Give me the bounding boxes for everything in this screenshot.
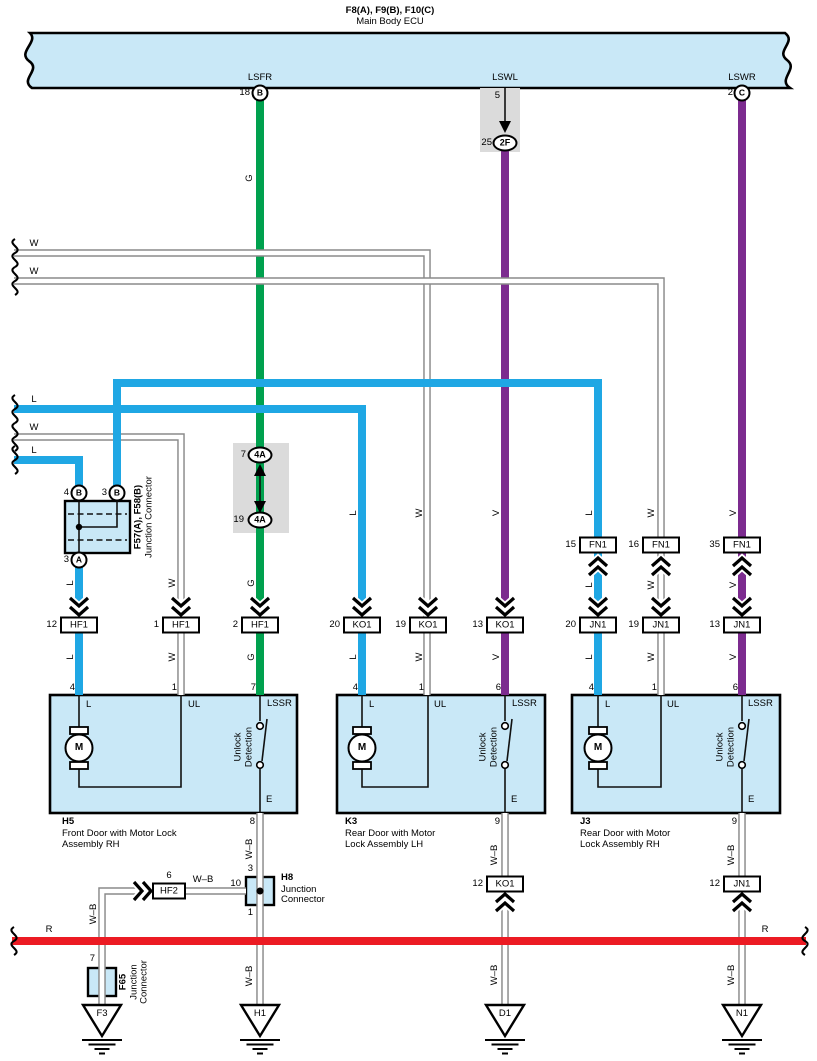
ko1-pin-19: 19 [395, 620, 406, 630]
f57-label: F57(A), F58(B) Junction Connector [134, 476, 155, 558]
j3-pin-lssr-number: 6 [733, 683, 738, 693]
j3-terminal-ul: UL [667, 700, 679, 710]
wire-label-w: W [30, 239, 39, 249]
wire-label-l: L [66, 580, 76, 585]
h5-terminal-e: E [266, 795, 272, 805]
wire-label-wb: W–B [245, 966, 255, 987]
h8-pin-left: 10 [230, 879, 241, 889]
wire-label-w: W [647, 653, 657, 662]
jn1-pin-20: 20 [565, 620, 576, 630]
k3-terminal-lssr: LSSR [512, 699, 537, 709]
ko1-connector: KO1 [409, 617, 447, 634]
j3-pin-ul-number: 1 [652, 683, 657, 693]
chevrons-up-bottom [496, 894, 751, 911]
ecu-pin-label-lswl: LSWL [492, 73, 518, 83]
fn1-connector: FN1 [642, 537, 680, 554]
main-body-ecu-band [25, 33, 790, 88]
h5-pin-ul-number: 1 [172, 683, 177, 693]
hf1-connector: HF1 [60, 617, 98, 634]
f57-type: Junction Connector [144, 476, 155, 558]
ecu-pin-number-2: 2 [728, 88, 733, 98]
f57-pin3-number: 3 [102, 488, 107, 498]
k3-switch-line2: Detection [489, 727, 500, 767]
h8-junction-dot [257, 888, 264, 895]
h5-desc2: Assembly RH [62, 840, 120, 850]
h8-type2: Connector [281, 895, 325, 905]
chevrons-down [70, 598, 751, 615]
chevrons-up-fn1 [589, 558, 751, 575]
h5-terminal-l: L [86, 700, 91, 710]
ecu-pin-label-lsfr: LSFR [248, 73, 272, 83]
wire-label-l: L [349, 654, 359, 659]
wire-label-l: L [585, 654, 595, 659]
wire-label-wb: W–B [193, 875, 214, 885]
j3-terminal-e: E [748, 795, 754, 805]
c2f-connector: 2F [493, 135, 518, 152]
jn1-pin-19: 19 [628, 620, 639, 630]
j3-switch-line1: Unlock [716, 727, 727, 767]
wire-label-l: L [31, 395, 36, 405]
fn1-pin-16: 16 [628, 540, 639, 550]
wire-label-w: W [647, 509, 657, 518]
wire-label-v: V [492, 510, 502, 516]
wire-label-l: L [349, 510, 359, 515]
ecu-pin-number-5: 5 [495, 91, 500, 101]
f65-type2: Connector [139, 960, 150, 1004]
fn1-pin-15: 15 [565, 540, 576, 550]
hf1-connector: HF1 [241, 617, 279, 634]
wire-label-l: L [31, 446, 36, 456]
f65-id: F65 [118, 960, 129, 1004]
wire-white-w3 [14, 437, 181, 695]
j3-id: J3 [580, 817, 591, 827]
ko1-pin-13: 13 [472, 620, 483, 630]
k3-switch-line1: Unlock [479, 727, 490, 767]
j3-desc2: Lock Assembly RH [580, 840, 660, 850]
hf1-pin-1: 1 [154, 620, 159, 630]
wire-label-g: G [247, 653, 257, 660]
f57-conn-b2: B [109, 485, 126, 502]
h8-pin-bottom: 1 [248, 908, 253, 918]
c4a-top-pin-number: 7 [241, 450, 246, 460]
h5-id: H5 [62, 817, 74, 827]
ground-label-f3: F3 [96, 1009, 107, 1019]
jn1-pin-13: 13 [709, 620, 720, 630]
wire-label-w: W [168, 579, 178, 588]
wiring-diagram: F8(A), F9(B), F10(C) Main Body ECU LSFR … [0, 0, 817, 1061]
h5-desc1: Front Door with Motor Lock [62, 829, 177, 839]
c4a-top-connector: 4A [248, 447, 273, 464]
wire-label-wb: W–B [727, 845, 737, 866]
wire-label-g: G [245, 174, 255, 181]
k3-terminal-l: L [369, 700, 374, 710]
ecu-connector-c: C [734, 85, 751, 102]
ecu-pin-label-lswr: LSWR [728, 73, 755, 83]
f57-pin4-number: 4 [64, 488, 69, 498]
k3-motor-label: M [358, 743, 366, 753]
wire-label-w: W [415, 509, 425, 518]
h5-terminal-ul: UL [188, 700, 200, 710]
ecu-pin-number-18: 18 [239, 88, 250, 98]
jn1-connector: JN1 [723, 617, 761, 634]
j3-pin-l-number: 4 [589, 683, 594, 693]
wire-label-wb: W–B [89, 904, 99, 925]
j3-motor-label: M [594, 743, 602, 753]
hf2-connector: HF2 [152, 883, 186, 900]
wire-label-wb: W–B [490, 965, 500, 986]
wire-label-w: W [30, 423, 39, 433]
k3-terminal-e: E [511, 795, 517, 805]
j3-desc1: Rear Door with Motor [580, 829, 670, 839]
diagram-graphics [0, 0, 817, 1061]
fn1-connector: FN1 [579, 537, 617, 554]
h5-switch-line2: Detection [244, 727, 255, 767]
ground-label-n1: N1 [736, 1009, 748, 1019]
jn1-connector: JN1 [723, 876, 761, 893]
wire-label-v: V [492, 654, 502, 660]
ko1-pin-20: 20 [329, 620, 340, 630]
wire-label-r: R [46, 925, 53, 935]
k3-switch-label: Unlock Detection [479, 727, 500, 767]
h8-id: H8 [281, 873, 293, 883]
ko1-bottom-pin-12: 12 [472, 879, 483, 889]
k3-desc1: Rear Door with Motor [345, 829, 435, 839]
wire-label-wb: W–B [245, 839, 255, 860]
h5-switch-line1: Unlock [234, 727, 245, 767]
c2f-pin-number: 25 [481, 138, 492, 148]
ko1-connector: KO1 [486, 876, 524, 893]
f57-conn-a: A [71, 552, 88, 569]
diagram-title-name: Main Body ECU [356, 17, 424, 27]
ground-label-h1: H1 [254, 1009, 266, 1019]
wire-label-r: R [762, 925, 769, 935]
wire-label-w: W [415, 653, 425, 662]
h5-pin-l-number: 4 [70, 683, 75, 693]
j3-pin-e-number: 9 [732, 817, 737, 827]
fn1-pin-35: 35 [709, 540, 720, 550]
f57-conn-b1: B [71, 485, 88, 502]
wire-label-l: L [585, 582, 595, 587]
f65-label: F65 Junction Connector [118, 960, 150, 1004]
c4a-bottom-connector: 4A [248, 512, 273, 529]
h5-motor-label: M [75, 743, 83, 753]
wire-label-w: W [647, 581, 657, 590]
diagram-title-models: F8(A), F9(B), F10(C) [346, 6, 435, 16]
k3-desc2: Lock Assembly LH [345, 840, 423, 850]
k3-pin-l-number: 4 [353, 683, 358, 693]
wire-label-w: W [168, 653, 178, 662]
h5-pin-e-number: 8 [250, 817, 255, 827]
j3-terminal-l: L [605, 700, 610, 710]
f57-name: F57(A), F58(B) [134, 476, 145, 558]
fn1-connector: FN1 [723, 537, 761, 554]
jn1-connector: JN1 [579, 617, 617, 634]
j3-terminal-lssr: LSSR [748, 699, 773, 709]
k3-id: K3 [345, 817, 357, 827]
ground-label-d1: D1 [499, 1009, 511, 1019]
j3-switch-line2: Detection [726, 727, 737, 767]
wire-label-l: L [585, 510, 595, 515]
hf1-pin-2: 2 [233, 620, 238, 630]
h8-pin-top: 3 [248, 864, 253, 874]
k3-pin-lssr-number: 6 [496, 683, 501, 693]
f65-pin-7: 7 [90, 954, 95, 964]
wire-label-l: L [66, 654, 76, 659]
k3-pin-ul-number: 1 [419, 683, 424, 693]
ko1-connector: KO1 [486, 617, 524, 634]
ecu-connector-b: B [252, 85, 269, 102]
jn1-connector: JN1 [642, 617, 680, 634]
k3-terminal-ul: UL [434, 700, 446, 710]
wire-label-v: V [729, 510, 739, 516]
k3-pin-e-number: 9 [495, 817, 500, 827]
wire-label-w: W [30, 267, 39, 277]
jn1-bottom-pin-12: 12 [709, 879, 720, 889]
wire-label-g: G [247, 579, 257, 586]
hf2-pin-6: 6 [166, 871, 171, 881]
ko1-connector: KO1 [343, 617, 381, 634]
wire-label-v: V [729, 654, 739, 660]
c4a-bottom-pin-number: 19 [233, 515, 244, 525]
h5-switch-label: Unlock Detection [234, 727, 255, 767]
j3-switch-label: Unlock Detection [716, 727, 737, 767]
f57-pin3a-number: 3 [64, 555, 69, 565]
h5-pin-lssr-number: 7 [251, 683, 256, 693]
h5-terminal-lssr: LSSR [267, 699, 292, 709]
wire-label-wb: W–B [727, 965, 737, 986]
wire-label-v: V [729, 582, 739, 588]
hf1-connector: HF1 [162, 617, 200, 634]
hf1-pin-12: 12 [46, 620, 57, 630]
wire-label-wb: W–B [490, 845, 500, 866]
